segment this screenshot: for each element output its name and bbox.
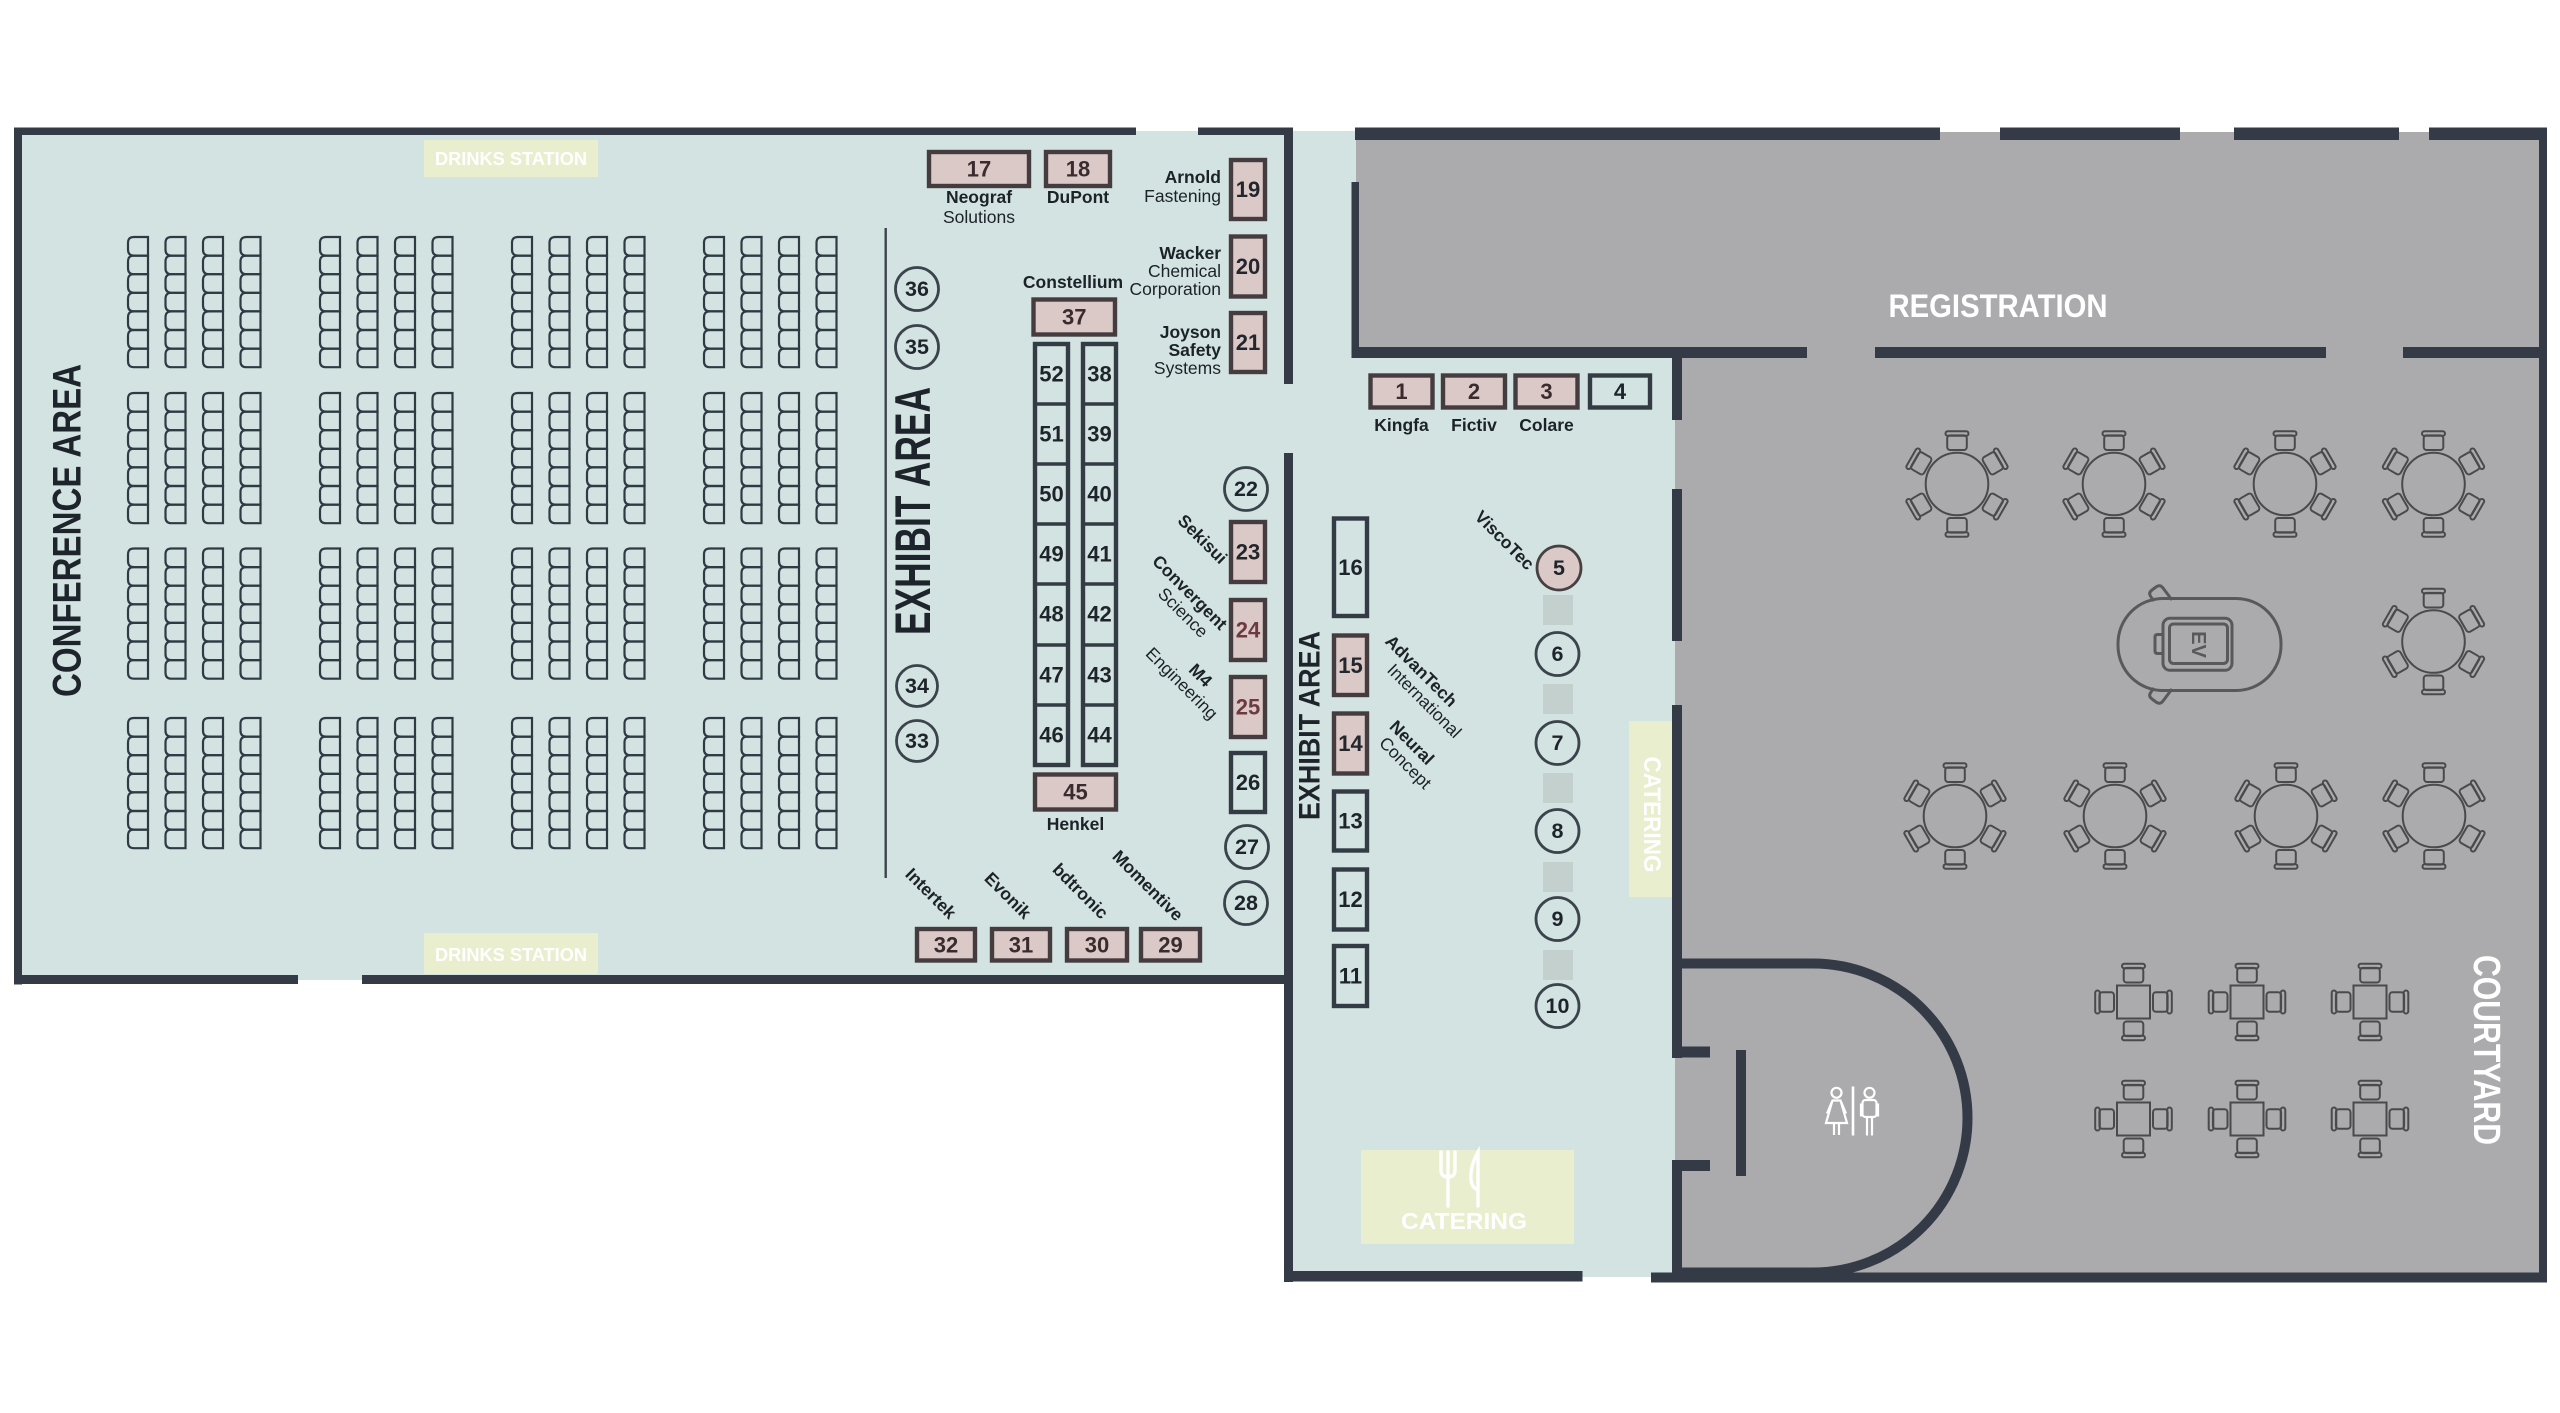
svg-text:10: 10 <box>1546 994 1570 1018</box>
svg-text:Fictiv: Fictiv <box>1451 415 1497 435</box>
svg-text:1: 1 <box>1395 379 1407 404</box>
svg-text:Chemical: Chemical <box>1148 261 1221 281</box>
svg-text:Constellium: Constellium <box>1023 272 1123 292</box>
svg-text:Systems: Systems <box>1154 358 1221 378</box>
svg-text:46: 46 <box>1039 723 1063 748</box>
svg-text:REGISTRATION: REGISTRATION <box>1889 288 2108 324</box>
svg-text:14: 14 <box>1338 731 1363 756</box>
svg-text:4: 4 <box>1614 379 1627 404</box>
svg-text:38: 38 <box>1087 362 1111 387</box>
svg-text:3: 3 <box>1540 379 1552 404</box>
svg-text:5: 5 <box>1553 556 1565 580</box>
svg-text:49: 49 <box>1039 542 1063 567</box>
svg-text:21: 21 <box>1236 330 1260 355</box>
svg-text:29: 29 <box>1158 932 1182 957</box>
svg-text:CONFERENCE AREA: CONFERENCE AREA <box>46 364 90 697</box>
svg-text:50: 50 <box>1039 482 1063 507</box>
svg-text:24: 24 <box>1236 618 1261 643</box>
svg-text:52: 52 <box>1039 362 1063 387</box>
svg-text:19: 19 <box>1236 177 1260 202</box>
svg-text:47: 47 <box>1039 663 1063 688</box>
svg-text:23: 23 <box>1236 540 1260 565</box>
svg-text:51: 51 <box>1039 422 1063 447</box>
svg-text:DuPont: DuPont <box>1047 187 1109 207</box>
svg-text:COURTYARD: COURTYARD <box>2465 955 2507 1145</box>
svg-text:Safety: Safety <box>1168 340 1221 360</box>
svg-text:18: 18 <box>1066 157 1090 182</box>
svg-text:EV: EV <box>2187 631 2209 658</box>
svg-text:DRINKS STATION: DRINKS STATION <box>435 945 587 965</box>
svg-text:35: 35 <box>905 335 929 359</box>
svg-text:42: 42 <box>1087 602 1111 627</box>
svg-text:17: 17 <box>967 157 991 182</box>
svg-text:37: 37 <box>1062 305 1086 330</box>
svg-text:27: 27 <box>1235 835 1259 859</box>
svg-text:39: 39 <box>1087 422 1111 447</box>
svg-text:20: 20 <box>1236 254 1260 279</box>
svg-text:8: 8 <box>1552 819 1564 843</box>
svg-text:9: 9 <box>1552 907 1564 931</box>
svg-text:22: 22 <box>1234 477 1258 501</box>
svg-text:45: 45 <box>1063 780 1087 805</box>
svg-text:CATERING: CATERING <box>1638 757 1665 873</box>
svg-text:30: 30 <box>1085 932 1109 957</box>
svg-text:12: 12 <box>1338 887 1362 912</box>
svg-text:44: 44 <box>1087 723 1112 748</box>
svg-text:Corporation: Corporation <box>1130 279 1221 299</box>
svg-text:EXHIBIT AREA: EXHIBIT AREA <box>885 387 941 635</box>
svg-text:Colare: Colare <box>1519 415 1574 435</box>
svg-text:Wacker: Wacker <box>1159 243 1221 263</box>
svg-text:EXHIBIT AREA: EXHIBIT AREA <box>1294 631 1327 820</box>
svg-text:26: 26 <box>1236 770 1260 795</box>
svg-text:16: 16 <box>1338 555 1362 580</box>
svg-text:11: 11 <box>1339 964 1362 989</box>
svg-text:6: 6 <box>1552 642 1564 666</box>
svg-text:25: 25 <box>1236 695 1260 720</box>
svg-text:DRINKS STATION: DRINKS STATION <box>435 149 587 169</box>
svg-text:31: 31 <box>1009 932 1033 957</box>
svg-text:15: 15 <box>1338 653 1362 678</box>
svg-text:Solutions: Solutions <box>943 207 1015 227</box>
svg-text:13: 13 <box>1338 809 1362 834</box>
svg-text:36: 36 <box>905 277 929 301</box>
svg-text:Neograf: Neograf <box>946 187 1012 207</box>
svg-text:Arnold: Arnold <box>1165 167 1221 187</box>
svg-text:Joyson: Joyson <box>1160 322 1221 342</box>
svg-text:Kingfa: Kingfa <box>1374 415 1429 435</box>
svg-text:Fastening: Fastening <box>1144 186 1221 206</box>
svg-text:40: 40 <box>1087 482 1111 507</box>
svg-text:32: 32 <box>934 932 958 957</box>
svg-text:43: 43 <box>1087 663 1111 688</box>
svg-text:Henkel: Henkel <box>1047 814 1104 834</box>
svg-text:41: 41 <box>1087 542 1111 567</box>
svg-text:48: 48 <box>1039 602 1063 627</box>
svg-text:33: 33 <box>905 729 929 753</box>
svg-text:34: 34 <box>905 674 929 698</box>
svg-text:7: 7 <box>1552 731 1564 755</box>
svg-text:28: 28 <box>1234 891 1258 915</box>
svg-text:CATERING: CATERING <box>1401 1208 1527 1234</box>
svg-text:2: 2 <box>1468 379 1480 404</box>
